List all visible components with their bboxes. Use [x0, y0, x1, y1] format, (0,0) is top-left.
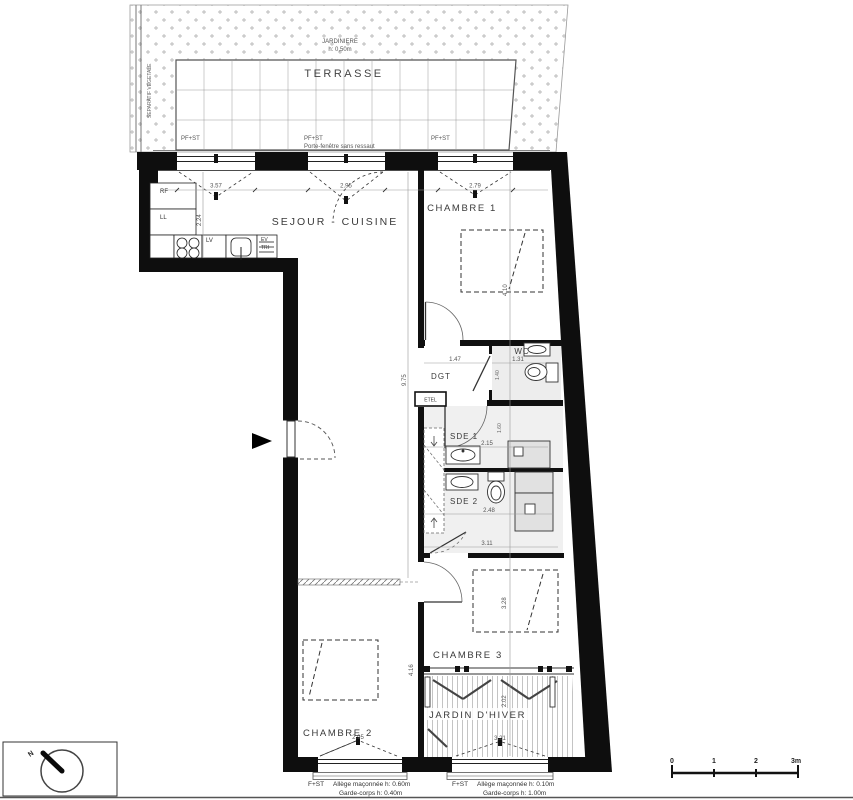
tri-label: TRI: [261, 245, 269, 251]
terrasse-label: TERRASSE: [304, 68, 383, 80]
scale-bar: 0 1 2 3m: [670, 758, 801, 778]
dim-top-a: 3.57: [210, 184, 222, 190]
dim-sde-bottom: 3.11: [481, 541, 493, 547]
sde2-shower-a: [515, 472, 553, 493]
fst2-tag: F+ST: [452, 781, 468, 788]
jardin-dhiver-label: JARDIN D'HIVER: [429, 710, 526, 721]
window-notes: F+ST Allège maçonnée h: 0.60m Garde-corp…: [308, 781, 554, 797]
floor-plan-sheet: SEPARATIF VEGETALE JARDINIERE h: 0,50m T…: [0, 0, 853, 800]
sde1-label: SDE 1: [450, 432, 478, 441]
scale-3m: 3m: [791, 758, 801, 765]
dim-jardin-window: 3.21: [494, 736, 506, 742]
scale-1: 1: [712, 758, 716, 765]
fst2-line2: Garde-corps h: 1.00m: [483, 790, 546, 797]
jardiniere-height: h: 0,50m: [328, 47, 351, 53]
hob-burner: [177, 248, 187, 258]
hob-burner: [189, 238, 199, 248]
entrance-arrow: [252, 433, 272, 449]
dim-top-b: 2.95: [340, 184, 352, 190]
kitchen-unit: RF LL LV EV TRI: [150, 183, 277, 260]
pf-st-label-2: PF+ST: [304, 136, 323, 142]
fst1-line1: Allège maçonnée h: 0.60m: [333, 781, 410, 788]
etel-label: ETEL: [424, 398, 437, 404]
sde2-cistern: [488, 472, 504, 481]
dim-wc: 1.31: [512, 357, 524, 363]
dishwasher-label: LV: [206, 238, 213, 244]
louver-hinges: [424, 666, 572, 672]
jardiniere-label: JARDINIERE: [322, 39, 358, 45]
dim-dgt: 1.47: [449, 357, 461, 363]
fst1-line2: Garde-corps h: 0.40m: [339, 790, 402, 797]
dim-chambre2-vert: 4.16: [409, 664, 415, 676]
floor-plan-drawing: SEPARATIF VEGETALE JARDINIERE h: 0,50m T…: [0, 0, 853, 800]
chambre2-label: CHAMBRE 2: [303, 728, 373, 739]
dim-sde1-vert: 1.60: [497, 423, 503, 433]
chambre1-label: CHAMBRE 1: [427, 203, 497, 214]
hob-burner: [177, 238, 187, 248]
terrace-zone: SEPARATIF VEGETALE JARDINIERE h: 0,50m T…: [130, 5, 568, 152]
dim-chambre1-width: 2.79: [469, 184, 481, 190]
chambre3-label: CHAMBRE 3: [433, 650, 503, 661]
dim-chambre3-vert: 3.28: [502, 597, 508, 609]
north-arrow: N: [3, 742, 117, 796]
bed-chambre1: [461, 230, 543, 292]
wc-label: WC: [514, 347, 529, 356]
pf-st-label-3: PF+ST: [431, 136, 450, 142]
bed-chambre3: [473, 570, 558, 632]
dim-corridor-vert: 9.75: [402, 374, 408, 386]
hob-burner: [189, 248, 199, 258]
dim-kitchen-vert: 2.24: [197, 214, 203, 226]
fst2-line1: Allège maçonnée h: 0.10m: [477, 781, 554, 788]
dim-sde2: 2.48: [483, 508, 495, 514]
dim-jardin-vert: 2.02: [502, 695, 508, 707]
dim-wc-vert: 1.40: [495, 370, 501, 380]
dgt-label: DGT: [431, 372, 451, 381]
sejour-label: SEJOUR - CUISINE: [272, 216, 399, 228]
dim-sde1: 2.15: [481, 441, 493, 447]
ev-label: EV: [261, 237, 268, 243]
pf-st-label-1: PF+ST: [181, 136, 200, 142]
chambre2-partition: [298, 579, 418, 585]
pf-st-note: Porte-fenêtre sans ressaut: [304, 144, 375, 150]
scale-0: 0: [670, 758, 674, 765]
wc-cistern: [546, 363, 558, 382]
scale-2: 2: [754, 758, 758, 765]
dim-chambre1-vert: 4.10: [503, 284, 509, 296]
separatif-label: SEPARATIF VEGETALE: [147, 63, 153, 118]
washer-label: LL: [160, 215, 167, 221]
fst1-tag: F+ST: [308, 781, 324, 788]
bed-chambre2: [303, 640, 378, 700]
sde2-label: SDE 2: [450, 497, 478, 506]
window-swing-symbols: [179, 172, 511, 222]
top-windows: [153, 151, 550, 171]
